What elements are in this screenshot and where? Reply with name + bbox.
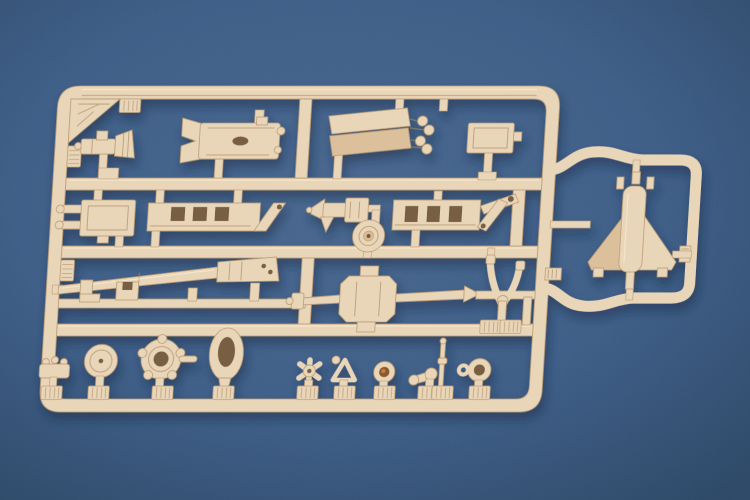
linkage-end bbox=[425, 368, 438, 380]
axle-cradle-block bbox=[338, 276, 397, 322]
sprue-gate-tab bbox=[119, 99, 141, 113]
sprue-gate-tab bbox=[432, 386, 454, 400]
trail-opening bbox=[404, 206, 418, 222]
sprue-gate-tab bbox=[213, 386, 235, 400]
platform-lug bbox=[167, 371, 177, 380]
cylinder-block bbox=[96, 131, 108, 140]
linkage-end bbox=[408, 375, 419, 385]
gate-stub bbox=[156, 190, 165, 204]
rocket-body-tube bbox=[618, 186, 646, 272]
sprue-gate-tab bbox=[469, 386, 491, 400]
gate-stub bbox=[411, 229, 420, 247]
blade-knob bbox=[417, 116, 428, 126]
trail-opening bbox=[448, 206, 462, 222]
fitting-body bbox=[39, 364, 70, 378]
cradle-pin bbox=[277, 127, 285, 135]
fork-stem bbox=[497, 301, 506, 322]
sprue-gate-tab bbox=[60, 260, 75, 281]
cradle-lug bbox=[256, 117, 267, 125]
gate-stub bbox=[550, 221, 590, 228]
trail-opening bbox=[170, 207, 185, 221]
fin-foot bbox=[657, 268, 668, 277]
cylinder-body bbox=[81, 139, 116, 154]
platform-lug bbox=[157, 335, 167, 344]
gate-stub bbox=[250, 283, 260, 301]
photo-stage bbox=[0, 0, 750, 500]
sprue-gate-tab bbox=[88, 386, 110, 400]
bracket-l-foot bbox=[80, 294, 100, 302]
blade-knob bbox=[415, 136, 426, 146]
blade-knob bbox=[424, 125, 435, 135]
runner-stub bbox=[439, 99, 448, 111]
sprue-gate-tab bbox=[480, 320, 502, 334]
fitting-nub bbox=[51, 357, 58, 364]
blade-knob bbox=[422, 144, 433, 154]
fin-tip-lug bbox=[616, 177, 624, 189]
sprue-gate-tab bbox=[334, 386, 356, 400]
gate-stub bbox=[672, 251, 691, 258]
axle-runner-drop bbox=[522, 297, 532, 325]
fork-tip bbox=[486, 255, 496, 264]
sprue-gate-tab bbox=[297, 386, 319, 400]
recoil-block bbox=[344, 198, 368, 222]
cradle-top-tab bbox=[360, 266, 379, 276]
gate-stub bbox=[333, 154, 343, 179]
prong-tip bbox=[55, 221, 63, 229]
bracket-ball bbox=[332, 356, 340, 364]
fin-tip-lug bbox=[632, 172, 641, 184]
breech-nub bbox=[97, 236, 108, 243]
cradle-bottom-tab bbox=[357, 322, 376, 332]
pin-collar bbox=[438, 358, 447, 364]
gate-stub bbox=[98, 168, 119, 179]
sprue-gate-tab bbox=[374, 386, 396, 400]
cradle-pin bbox=[274, 147, 281, 154]
bracket-notch bbox=[122, 282, 132, 290]
sprue-gate-tab bbox=[545, 268, 562, 280]
gate-foot bbox=[478, 172, 496, 180]
prong-tip bbox=[56, 205, 64, 213]
platform-lug bbox=[138, 349, 148, 358]
sprue-gate-tab bbox=[41, 386, 63, 400]
fin-foot bbox=[593, 268, 604, 277]
sprue-photo bbox=[0, 0, 750, 500]
gate-stub bbox=[234, 190, 243, 204]
pin-cap bbox=[440, 338, 446, 344]
platform-pin bbox=[179, 356, 197, 362]
sprue-gate-tab bbox=[152, 386, 174, 400]
trail-opening bbox=[192, 207, 207, 221]
nose-tip bbox=[306, 207, 312, 213]
fin-tip-lug bbox=[646, 177, 654, 189]
gate-stub bbox=[188, 288, 198, 301]
fork-tip bbox=[515, 261, 525, 270]
sprue-gate-tab bbox=[500, 320, 522, 334]
gate-stub bbox=[151, 230, 160, 247]
box-nub bbox=[513, 132, 522, 141]
trail-opening bbox=[214, 207, 229, 221]
trail-opening bbox=[426, 206, 440, 222]
axle-nub bbox=[286, 298, 293, 305]
platform-lug bbox=[143, 371, 153, 380]
recoil-tube bbox=[323, 203, 347, 217]
